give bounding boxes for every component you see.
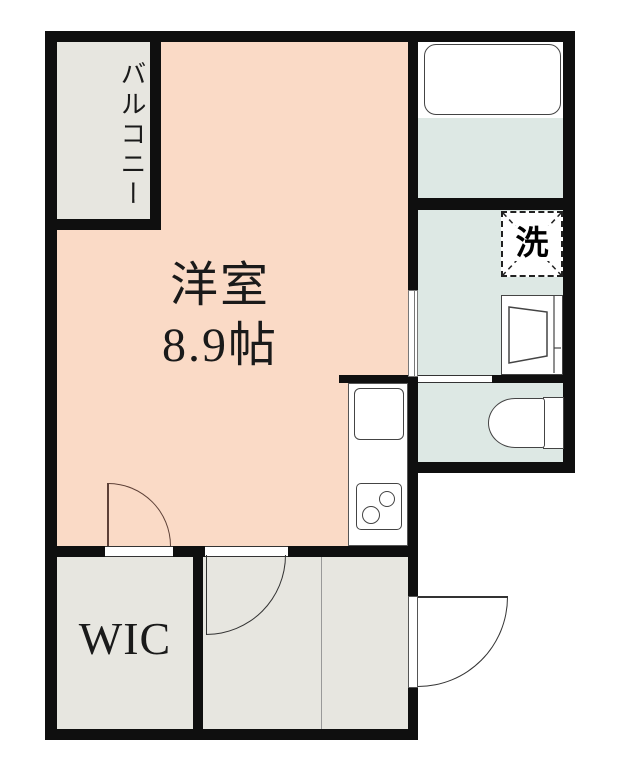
wall-top: [45, 31, 575, 42]
room-title: 洋室 8.9帖: [60, 256, 380, 376]
stove: [356, 483, 402, 530]
wic-label: WIC: [57, 612, 193, 665]
wic-doorway: [105, 546, 173, 557]
wall-room-bottom-c: [288, 546, 418, 557]
room-name: 洋室: [60, 256, 380, 316]
toilet-bowl: [488, 398, 545, 448]
washroom-sliding-door: [408, 290, 418, 377]
washroom-sliding-door-panel: [414, 291, 415, 376]
wall-toilet-bottom: [408, 462, 575, 473]
entrance-doorway: [408, 596, 418, 688]
wall-bottom: [45, 729, 418, 740]
wall-room-right-upper: [408, 31, 418, 290]
wall-wic-hall: [193, 546, 203, 740]
vanity-basin: [502, 296, 561, 373]
floorplan-canvas: 洗 バルコニー 洋室 8.9帖 WIC: [0, 0, 622, 769]
bathtub: [424, 44, 561, 115]
washer-label: 洗: [515, 226, 550, 261]
bathroom-floor: [418, 118, 563, 198]
wall-toilet-left: [408, 375, 418, 473]
toilet-sliding-door: [418, 375, 492, 383]
wall-right-lower: [408, 473, 418, 596]
wall-left: [45, 31, 57, 740]
washing-machine-area: 洗: [501, 211, 563, 277]
wall-bath-washroom: [408, 198, 575, 210]
kitchen-sink: [354, 388, 404, 440]
entrance-door-arc: [418, 597, 508, 687]
stove-burner-small: [379, 491, 395, 507]
vanity-sink: [501, 295, 563, 375]
wall-kitchen-stub: [339, 375, 418, 383]
toilet-tank: [543, 397, 564, 449]
wall-balcony-bottom: [45, 219, 161, 230]
wall-room-bottom-a: [45, 546, 105, 557]
wall-balcony-right: [150, 31, 161, 230]
wall-below-entrance: [408, 688, 418, 740]
entrance-step-line: [321, 557, 322, 729]
stove-burner-large: [362, 506, 380, 524]
room-size: 8.9帖: [60, 316, 380, 376]
wall-washroom-toilet: [492, 375, 575, 383]
wall-right: [563, 31, 575, 473]
balcony-label: バルコニー: [57, 50, 150, 220]
